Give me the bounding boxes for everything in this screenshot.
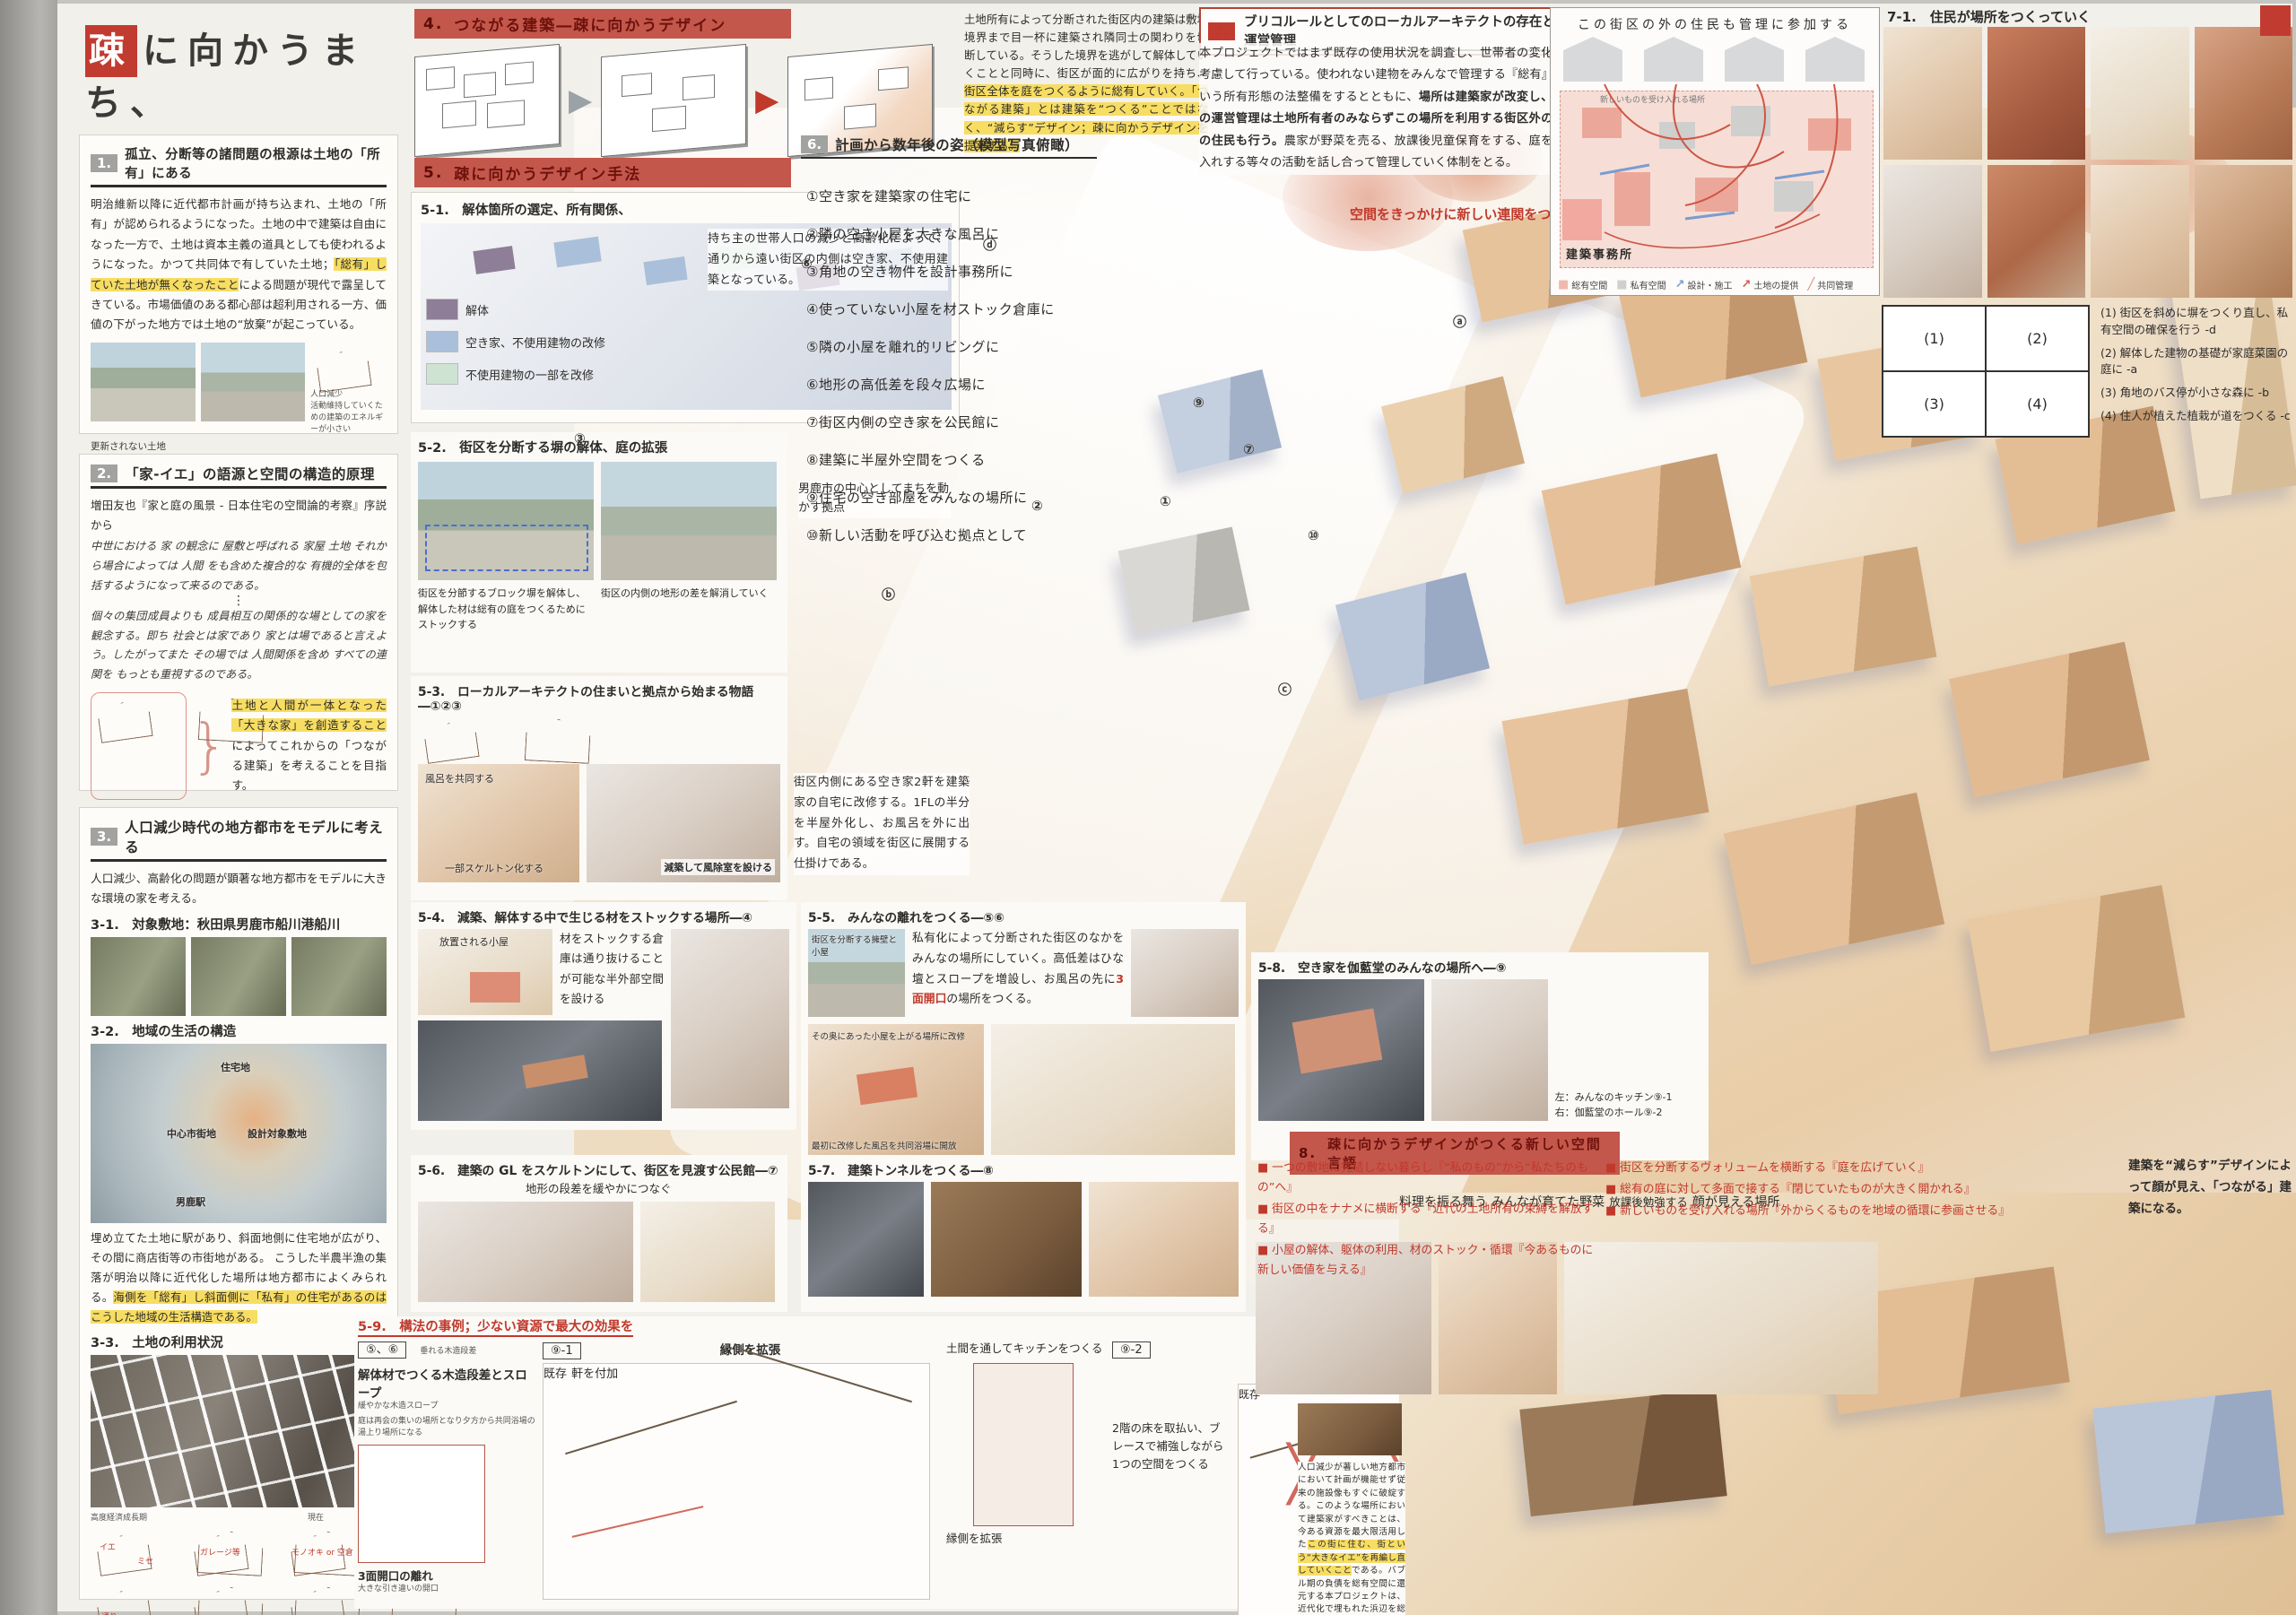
label-era-growth: 高度経済成長期 [91,1513,147,1524]
section-2-header: 2. 「家-イエ」の語源と空間の構造的原理 [91,464,387,489]
render-garando-hall [1431,979,1547,1121]
section-4-header: 4. つながる建築―疎に向かうデザイン [414,9,791,39]
photo-terrain-gap [601,462,777,580]
section-8-note: 建築を“減らす”デザインによって顔が見え、「つながる」建築になる。 [2128,1155,2292,1220]
sketch-label: モノオキ or 空倉 [291,1548,353,1559]
section-5-3-text: 街区内側にある空き家2軒を建築家の自宅に改修する。1FLの半分を半屋外化し、お風… [794,773,970,875]
legend-item: 解体 [426,299,605,320]
vacant-block [643,256,687,285]
label-extend-engawa-2: 縁側を拡張 [946,1530,1108,1548]
legend-label: 共同管理 [1817,278,1853,291]
section-7-number: 7. [1208,22,1235,40]
label-remove-floor-brace: 2階の床を取払い、ブレースで補強しながら1つの空間をつくる [1112,1420,1229,1473]
bullet: ■ 新しいものを受け入れる場所『外からくるものを地域の循環に参画させる』 [1605,1202,2108,1221]
model-photo-stock-place [418,1020,662,1121]
section-5-3-title: 5-3. ローカルアーキテクトの住まいと拠点から始まる物語―①②③ [418,682,780,714]
caption-skeleton: 一部スケルトン化する [445,861,544,875]
legend-label: 空き家、不使用建物の改修 [465,334,605,351]
legend-label: 総有空間 [1571,278,1607,291]
plan-item-8: ⑧建築に半屋外空間をつくる [806,454,1102,467]
plan-item-7: ⑦街区内側の空き家を公民館に [806,416,1102,430]
plan-item-6: ⑥地形の高低差を段々広場に [806,378,1102,392]
plan-item-9: ⑨住宅の空き部屋をみんなの場所に [806,491,1102,505]
section-5-3-block: 5-3. ローカルアーキテクトの住まいと拠点から始まる物語―①②③ 風呂を共同す… [411,676,787,900]
section-2-figure-row: } 土地と人間が一体となった「大きな家」を創造することによってこれからの「つなが… [91,692,387,800]
bullet-text: 一つの敷地に完結しない暮らし『“私のもの”から“私たちのもの”へ』 [1257,1161,1588,1194]
legend-item: 不使用建物の一部を改修 [426,363,605,385]
section-5-9-title: 5-9. 構法の事例；少ない資源で最大の効果を [358,1316,633,1337]
caption-hall: 右：伽藍堂のホール⑨-2 [1555,1105,1701,1121]
photo-retaining-wall: 街区を分断する擁壁と小屋 [808,929,905,1017]
render-windbreak-room: 減築して風除室を設ける [587,764,780,882]
legend-glyph: ■ [1616,278,1627,291]
section-6-header: 6. 計画から数年後の姿（模型写真俯瞰） [801,135,1097,166]
bullet-text: 新しいものを受け入れる場所『外からくるものを地域の循環に参画させる』 [1620,1204,2010,1218]
parcel-sketch-row-2: 通り [91,1582,387,1615]
section-5-6-caption: 地形の段差を緩やかにつなぐ [526,1180,780,1198]
presentation-board: ③ ② ① ⑥ ⑦ ⑩ ⑨ ⓓ ⓑ ⓐ ⓒ 疎に向かうまち、 拡がる庭と 大きな… [0,0,2296,1615]
text: 人口減少が著しい地方都市において計画が機能せず従来の施設像もすぐに破綻する。この… [1298,1463,1405,1550]
legend-swatch-partial [426,363,458,385]
legend-label: 私有空間 [1631,278,1666,291]
section-5-5-row: 街区を分断する擁壁と小屋 私有化によって分断された街区のなかをみんなの場所にして… [808,929,1239,1017]
resident-place-photo [1883,165,1982,298]
sketch-label: ガレージ等 [200,1548,240,1559]
grid-cell-3: (3) [1883,371,1986,437]
site-maps-row [91,937,387,1016]
case-9-1-plan-column: 土間を通してキッチンをつくる 縁側を拡張 [946,1340,1108,1548]
tag-case-5-6: ⑤、⑥ [358,1341,406,1359]
section-5-6-title: 5-6. 建築の GL をスケルトンにして、街区を見渡す公民館―⑦ [418,1160,780,1178]
section-5-5-text: 私有化によって分断された街区のなかをみんなの場所にしていく。高低差はひな壇とスロ… [912,929,1124,1017]
section-5-7-title: 5-7. 建築トンネルをつくる―⑧ [808,1160,1239,1178]
section-6-list: ①空き家を建築家の住宅に ②隣の空き小屋を大きな風呂に ③角地の空き物件を設計事… [806,190,1102,567]
section-5-9-block: 5-9. 構法の事例；少ない資源で最大の効果を ⑤、⑥ 垂れる木造段差 解体材で… [354,1316,1296,1609]
resident-example-grid: (1) (2) (3) (4) [1882,305,2090,438]
label-add-eave: 軒を付加 [571,1368,618,1381]
resident-place-photo [2091,27,2189,160]
caption-bath-open: 最初に改修した風呂を共同浴場に開放 [812,1139,957,1151]
section-5-7-photos [808,1182,1239,1297]
tag-case-9-2: ⑨-2 [1112,1341,1151,1359]
model-photo-tunnel-aerial [808,1182,924,1297]
section-1-body: 明治維新以降に近代都市計画が持ち込まれ、土地の「所有」が認められるようになった。… [91,195,387,335]
text: 私有化によって分断された街区のなかをみんなの場所にしていく。高低差はひな壇とスロ… [912,932,1124,986]
plan-item-4: ④使っていない小屋を材ストック倉庫に [806,303,1102,317]
grid-cell-2: (2) [1986,306,2089,371]
note-garden-gathering: 庭は再会の集いの場所となり夕方から共同浴場の湯上り場所になる [358,1416,537,1439]
caption-retaining-wall: 街区を分断する擁壁と小屋 [812,933,905,958]
section-3-title: 人口減少時代の地方都市をモデルに考える [125,817,387,856]
big-house-concept-sketch [91,692,187,800]
photo-tunnel-interior-1 [931,1182,1081,1297]
section-4-intro: 土地所有によって分断された街区内の建築は敷地境界まで目一杯に建築され隣同士の関わ… [964,11,1208,155]
bullet-text: 街区を分断するヴォリュームを横断する『庭を広げていく』 [1620,1161,1929,1175]
legend-joint-management: ╱共同管理 [1807,278,1853,291]
section-5-3-photos: 風呂を共同する 一部スケルトン化する 減築して風除室を設ける [418,764,780,882]
section-1-panel: 1. 孤立、分断等の諸問題の根源は土地の「所有」にある 明治維新以降に近代都市計… [79,135,398,434]
caption-abandoned-shed: 放置される小屋 [439,934,509,949]
vacant-block [553,237,601,268]
resident-example-list: (1) 街区を斜めに塀をつくり直し、私有空間の確保を行う -d (2) 解体した… [2100,305,2294,431]
legend-swatch-demolish [426,299,458,320]
label-hanging-steps: 垂れる木造段差 [420,1347,476,1356]
model-marker: ⓑ [882,585,895,603]
section-1-number: 1. [91,154,117,172]
grid-cell-4: (4) [1986,371,2089,437]
section-5-8-title: 5-8. 空き家を伽藍堂のみんなの場所へ―⑨ [1258,958,1701,976]
model-marker: ⑦ [1243,441,1255,457]
annex-highlight-block [857,1067,918,1106]
sketch-label: 活動維持していくための建築のエネルギーが小さい [310,401,387,436]
legend-glyph: ↗ [1675,278,1685,291]
sketch-label: イエ [100,1542,116,1554]
section-5-number: 5. [423,164,443,182]
shrinking-city-sketch [310,343,387,389]
legend-label: 解体 [465,301,489,318]
section-3-header: 3. 人口減少時代の地方都市をモデルに考える [91,817,387,862]
section-5-5-photos2: その奥にあった小屋を上がる場所に改修 最初に改修した風呂を共同浴場に開放 [808,1024,1239,1159]
legend-label: 設計・施工 [1688,278,1733,291]
plan-item-5: ⑤隣の小屋を離れ的リビングに [806,341,1102,354]
section-5-2-captions: 街区を分節するブロック塀を解体し、解体した材は総有の庭をつくるためにストックする… [418,586,780,633]
section-3-panel: 3. 人口減少時代の地方都市をモデルに考える 人口減少、高齢化の問題が顕著な地方… [79,807,398,1600]
section-6-header-row: 6. 計画から数年後の姿（模型写真俯瞰） [801,135,1097,159]
sketch-label: ミセ [137,1557,153,1568]
photo-stilt-warehouse [671,929,789,1108]
resident-place-photo [2091,165,2189,298]
demolish-block [473,246,515,274]
label-sliding-opening: 大きな引き違いの開口 [358,1584,537,1595]
iso-drawing-thinned-block [601,44,746,157]
iso-drawing-dense-block [414,44,560,157]
label-design-site: 設計対象敷地 [248,1126,307,1141]
bullet: ■ 一つの敷地に完結しない暮らし『“私のもの”から“私たちのもの”へ』 [1257,1159,1596,1198]
section-7-1-photo-collage [1883,27,2292,298]
section-5-5-block: 5-5. みんなの離れをつくる―⑤⑥ 街区を分断する擁壁と小屋 私有化によって分… [801,902,1246,1162]
section-2-quote2: 個々の集団成員よりも 成員相互の関係的な場としての家を観念する。即ち 社会とは家… [91,607,387,685]
section-3-body: 人口減少、高齢化の問題が顕著な地方都市をモデルに大きな環境の家を考える。 [91,869,387,909]
map-akita [91,937,186,1016]
parcel-sketch: 通り [91,1582,180,1615]
label-existing-9-1: 既存 [544,1368,567,1381]
resident-place-photo [2195,165,2293,298]
scan-edge [0,0,57,1615]
plan-item-1: ①空き家を建築家の住宅に [806,190,1102,204]
demolish-wall-overlay [425,525,588,571]
section-5-6-block: 5-6. 建築の GL をスケルトンにして、街区を見渡す公民館―⑦ 地形の段差を… [411,1155,787,1312]
section-5-8-captions: 左：みんなのキッチン⑨-1 右：伽藍堂のホール⑨-2 [1555,1090,1701,1121]
resident-place-photo [2195,27,2293,160]
example-item-1: (1) 街区を斜めに塀をつくり直し、私有空間の確保を行う -d [2100,305,2294,339]
section-2-number: 2. [91,465,117,482]
caption-shared-bath: 風呂を共同する [425,771,494,786]
legend-glyph: ╱ [1807,278,1814,291]
tag-case-9-1: ⑨-1 [543,1342,581,1359]
section-1-title: 孤立、分断等の諸問題の根源は土地の「所有」にある [125,144,387,182]
section-7-body: 本プロジェクトではまず既存の使用状況を調査し、世帯者の変化を考慮して行っている。… [1199,43,1565,175]
model-marker: ⓐ [1453,312,1466,331]
bullet: ■ 街区を分断するヴォリュームを横断する『庭を広げていく』 [1605,1159,2108,1178]
caption-wall-demolition: 街区を分節するブロック塀を解体し、解体した材は総有の庭をつくるためにストックする [418,586,594,633]
section-5-2-block: 5-2. 街区を分断する塀の解体、庭の拡張 街区を分節するブロック塀を解体し、解… [411,432,787,673]
section-2-intro: 増田友也『家と庭の風景 - 日本住宅の空間論的考察』序説から [91,496,387,535]
label-residential: 住宅地 [221,1060,250,1074]
sketch-diagram: 人口減少 活動維持していくための建築のエネルギーが小さい [310,343,387,436]
parcel-sketch: イエミセ [91,1526,180,1576]
section-6-title: 計画から数年後の姿（模型写真俯瞰） [835,135,1079,154]
title-line-1: 疎に向かうまち、 [85,25,399,129]
case-9-1-column: ⑨-1 縁側を拡張 既存 軒を付加 [543,1340,937,1600]
section-5-7-block: 5-7. 建築トンネルをつくる―⑧ [801,1155,1246,1312]
story-hand-sketch [418,714,780,764]
label-doma-kitchen: 土間を通してキッチンをつくる [946,1340,1108,1358]
ellipsis: ⋮ [91,595,387,607]
section-2-quote1: 中世における 家 の観念に 屋敷と呼ばれる 家屋 土地 それから場合によっては … [91,537,387,595]
model-marker: ③ [574,430,586,447]
resident-place-photo [1987,165,2086,298]
label-oga-station: 男鹿駅 [176,1194,205,1209]
spatial-language-photo-3 [1564,1242,1878,1394]
era-labels: 高度経済成長期 現在 [91,1513,387,1524]
photo-wood-interior [1298,1403,1402,1455]
caption-windbreak: 減築して風除室を設ける [661,859,775,875]
section-6-number: 6. [801,135,828,153]
diagram-legend: ■総有空間 ■私有空間 ↗設計・施工 ↗土地の提供 ╱共同管理 [1558,278,1853,291]
map-oga-peninsula [191,937,286,1016]
section-5-header: 5. 疎に向かうデザイン手法 [414,158,791,187]
photo-vacant-lot-1 [91,343,196,421]
legend-design-build: ↗設計・施工 [1675,278,1733,291]
red-arrow-icon: ▶ [755,85,778,116]
model-marker: ⑨ [1193,395,1205,411]
section-1-header: 1. 孤立、分断等の諸問題の根源は土地の「所有」にある [91,144,387,187]
label-extend-engawa: 縁側を拡張 [720,1343,781,1358]
section-1-figures: 人口減少 活動維持していくための建築のエネルギーが小さい [91,343,387,436]
section-3-1-heading: 3-1. 対象敷地：秋田県男鹿市船川港船川 [91,915,387,933]
photo-vacant-lot-2 [201,343,306,421]
caption-terrain: 街区の内側の地形の差を解消していく [601,586,777,633]
bullet-text: 総有の庭に対して多面で接する『閉じていたものが大きく開かれる』 [1620,1183,1975,1196]
section-3-number: 3. [91,828,117,846]
label-three-side-annex: 3面開口の離れ [358,1567,537,1584]
photo-abandoned-shed: 放置される小屋 [418,929,552,1015]
section-5-5-title: 5-5. みんなの離れをつくる―⑤⑥ [808,907,1239,925]
section-2-panel: 2. 「家-イエ」の語源と空間の構造的原理 増田友也『家と庭の風景 - 日本住宅… [79,454,398,791]
parcel-sketch: ガレージ等 [187,1526,277,1576]
render-community-hall [418,1202,633,1302]
section-5-title: 疎に向かうデザイン手法 [454,161,641,184]
concept-sketch-strokes [91,693,186,792]
model-photo-garando-roof [1258,979,1424,1121]
photo-block-wall [418,462,594,580]
model-photo-annex: その奥にあった小屋を上がる場所に改修 最初に改修した風呂を共同浴場に開放 [808,1024,984,1159]
section-drawing-9-1: 既存 軒を付加 [543,1363,930,1600]
section-4-title: つながる建築―疎に向かうデザイン [454,13,726,35]
model-marker: ⑥ [801,256,813,272]
land-use-aerial-photo [91,1355,387,1507]
text: の場所をつくる。 [946,993,1038,1006]
model-marker: ② [1031,498,1043,514]
caption-kitchen: 左：みんなのキッチン⑨-1 [1555,1090,1701,1106]
shed-highlight-block [470,972,520,1003]
text: 土地所有によって分断された街区内の建築は敷地境界まで目一杯に建築され隣同士の関わ… [964,13,1208,80]
section-2-title: 「家-イエ」の語源と空間の構造的原理 [125,464,375,483]
section-3-body-2: 埋め立てた土地に駅があり、斜面地側に住宅地が広がり、その間に商店街等の市街地があ… [91,1229,387,1327]
legend-label: 不使用建物の一部を改修 [465,366,594,383]
section-5-4-block: 5-4. 減築、解体する中で生じる材をストックする場所―④ 放置される小屋 材を… [411,902,796,1130]
bullet: ■ 総有の庭に対して多面で接する『閉じていたものが大きく開かれる』 [1605,1180,2108,1200]
grid-cell-1: (1) [1883,306,1986,371]
legend-glyph: ↗ [1742,278,1752,291]
model-house-blue-roof [2092,1390,2284,1533]
model-wood-structure [1519,1389,1726,1516]
model-marker: ⓓ [983,235,996,254]
section-5-4-title: 5-4. 減築、解体する中で生じる材をストックする場所―④ [418,907,789,925]
bullet: ■ 小屋の解体、躯体の利用、材のストック・循環『今あるものに新しい価値を与える』 [1257,1241,1596,1281]
finale-paragraph: 人口減少が著しい地方都市において計画が機能せず従来の施設像もすぐに破綻する。この… [1298,1462,1405,1615]
example-item-2: (2) 解体した建物の基礎が家庭菜園の庭に -a [2100,345,2294,379]
bullet-text: 街区の中をナナメに横断する『近代の土地所有の束縛を解放する』 [1257,1203,1593,1236]
legend-label: 土地の提供 [1753,278,1798,291]
section-5-8-photos: 左：みんなのキッチン⑨-1 右：伽藍堂のホール⑨-2 [1258,979,1701,1121]
legend-shared-space: ■総有空間 [1558,278,1607,291]
red-corner-mark [2260,5,2291,36]
bullet: ■ 街区の中をナナメに横断する『近代の土地所有の束縛を解放する』 [1257,1200,1596,1239]
label-gentle-slope: 緩やかな木造スロープ [358,1401,537,1412]
section-5-2-photos [418,462,780,580]
management-diagram: この街区の外の住民も管理に参加する 新しいものを受け入れる場所 建築事務所 [1550,7,1880,296]
caption-shed-renov: その奥にあった小屋を上がる場所に改修 [812,1029,965,1042]
legend-land-offer: ↗土地の提供 [1742,278,1799,291]
plan-item-2: ②隣の空き小屋を大きな風呂に [806,228,1102,241]
section-8-bullets-left: ■ 一つの敷地に完結しない暮らし『“私のもの”から“私たちのもの”へ』 ■ 街区… [1257,1159,1596,1282]
section-3-2-heading: 3-2. 地域の生活の構造 [91,1021,387,1040]
section-7-1-title: 7-1. 住民が場所をつくっていく [1887,7,2091,26]
section-7-red-note: 空間をきっかけに新しい連関をつくる [1350,204,1578,223]
legend-swatch-vacant [426,331,458,352]
section-5-1-legend: 解体 空き家、不使用建物の改修 不使用建物の一部を改修 [426,299,605,395]
plan-item-10: ⑩新しい活動を呼び込む拠点として [806,529,1102,543]
legend-item: 空き家、不使用建物の改修 [426,331,605,352]
photo-caption: 更新されない土地 [91,439,387,453]
plan-drawing-5-6 [358,1445,485,1563]
diagram-arrows [1551,8,1881,297]
resident-place-photo [1987,27,2086,160]
render-shared-annex [991,1024,1235,1159]
resident-place-photo [1883,27,1982,160]
label-city-center: 中心市街地 [167,1126,216,1141]
section-3-3-heading: 3-3. 土地の利用状況 [91,1333,387,1351]
stock-warehouse-block [522,1055,587,1089]
label-era-now: 現在 [308,1513,324,1524]
label-wood-steps-slope: 解体材でつくる木造段差とスロープ [358,1365,537,1401]
photo-hinadan-terrace [1131,929,1239,1017]
text: によってこれからの「つながる建築」を考えることを目指す。 [231,739,387,793]
case-5-6-column: ⑤、⑥ 垂れる木造段差 解体材でつくる木造段差とスロープ 緩やかな木造スロープ … [358,1340,537,1595]
model-marker: ① [1160,493,1171,509]
map-funakawa-port [291,937,387,1016]
title-accent-char: 疎 [85,25,137,77]
model-marker: ⓒ [1278,680,1291,699]
section-8-bullets-right: ■ 街区を分断するヴォリュームを横断する『庭を広げていく』 ■ 総有の庭に対して… [1605,1159,2108,1223]
section-4-number: 4. [423,15,443,33]
garando-highlight-block [1292,1008,1383,1073]
section-5-8-block: 5-8. 空き家を伽藍堂のみんなの場所へ―⑨ 左：みんなのキッチン⑨-1 右：伽… [1251,952,1709,1160]
aerial-structure-image: 住宅地 中心市街地 設計対象敷地 男鹿駅 [91,1044,387,1223]
example-item-4: (4) 住人が植えた植栽が道をつくる -c [2100,408,2294,425]
plan-drawing-9-1 [973,1363,1074,1526]
legend-private-space: ■私有空間 [1616,278,1665,291]
example-item-3: (3) 角地のバス停が小さな森に -b [2100,385,2294,402]
photo-tunnel-interior-2 [1089,1182,1239,1297]
highlighted-text: 海側を「総有」し斜面側に「私有」の住宅があるのはこうした地域の生活構造である。 [91,1290,387,1324]
section-5-6-photos [418,1202,780,1302]
bullet-text: 小屋の解体、躯体の利用、材のストック・循環『今あるものに新しい価値を与える』 [1257,1244,1593,1277]
parcel-sketch-row-1: イエミセ ガレージ等 モノオキ or 空倉 [91,1526,387,1576]
model-photo-shared-bath: 風呂を共同する 一部スケルトン化する [418,764,579,882]
render-terrain-steps [640,1202,775,1302]
legend-glyph: ■ [1558,278,1569,291]
parcel-sketch [187,1582,277,1615]
plan-item-3: ③角地の空き物件を設計事務所に [806,265,1102,279]
gray-arrow-icon: ▶ [569,85,592,116]
model-marker: ⑩ [1308,527,1319,543]
section-5-2-title: 5-2. 街区を分断する塀の解体、庭の拡張 [418,438,780,456]
